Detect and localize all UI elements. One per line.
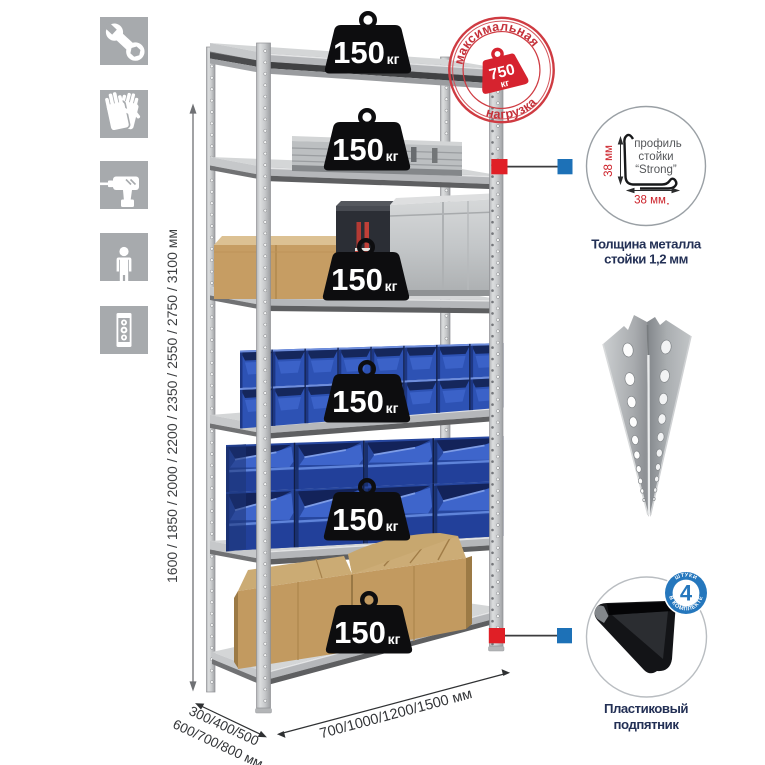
svg-text:“Strong”: “Strong” [635, 164, 677, 176]
svg-text:подпятник: подпятник [614, 717, 680, 732]
svg-text:150: 150 [334, 615, 386, 650]
svg-text:4: 4 [680, 581, 693, 606]
svg-text:1600 / 1850 / 2000 / 2200 / 23: 1600 / 1850 / 2000 / 2200 / 2350 / 2550 … [164, 229, 180, 583]
svg-text:кг: кг [386, 148, 399, 164]
svg-text:профиль: профиль [634, 138, 682, 150]
svg-text:38 мм: 38 мм [603, 145, 615, 177]
svg-text:150: 150 [331, 262, 383, 297]
svg-text:стойки: стойки [638, 151, 673, 163]
svg-text:150: 150 [332, 132, 384, 167]
svg-text:кг: кг [385, 278, 398, 294]
svg-text:кг: кг [388, 631, 401, 647]
svg-text:150: 150 [332, 384, 384, 419]
svg-text:38 мм.: 38 мм. [634, 192, 670, 208]
svg-text:Пластиковый: Пластиковый [604, 701, 688, 716]
svg-text:кг: кг [387, 51, 400, 67]
svg-text:Толщина металла: Толщина металла [591, 237, 702, 252]
svg-text:кг: кг [386, 518, 399, 534]
svg-text:150: 150 [332, 502, 384, 537]
svg-text:стойки 1,2 мм: стойки 1,2 мм [604, 252, 688, 267]
svg-text:150: 150 [333, 35, 385, 70]
svg-text:кг: кг [386, 400, 399, 416]
